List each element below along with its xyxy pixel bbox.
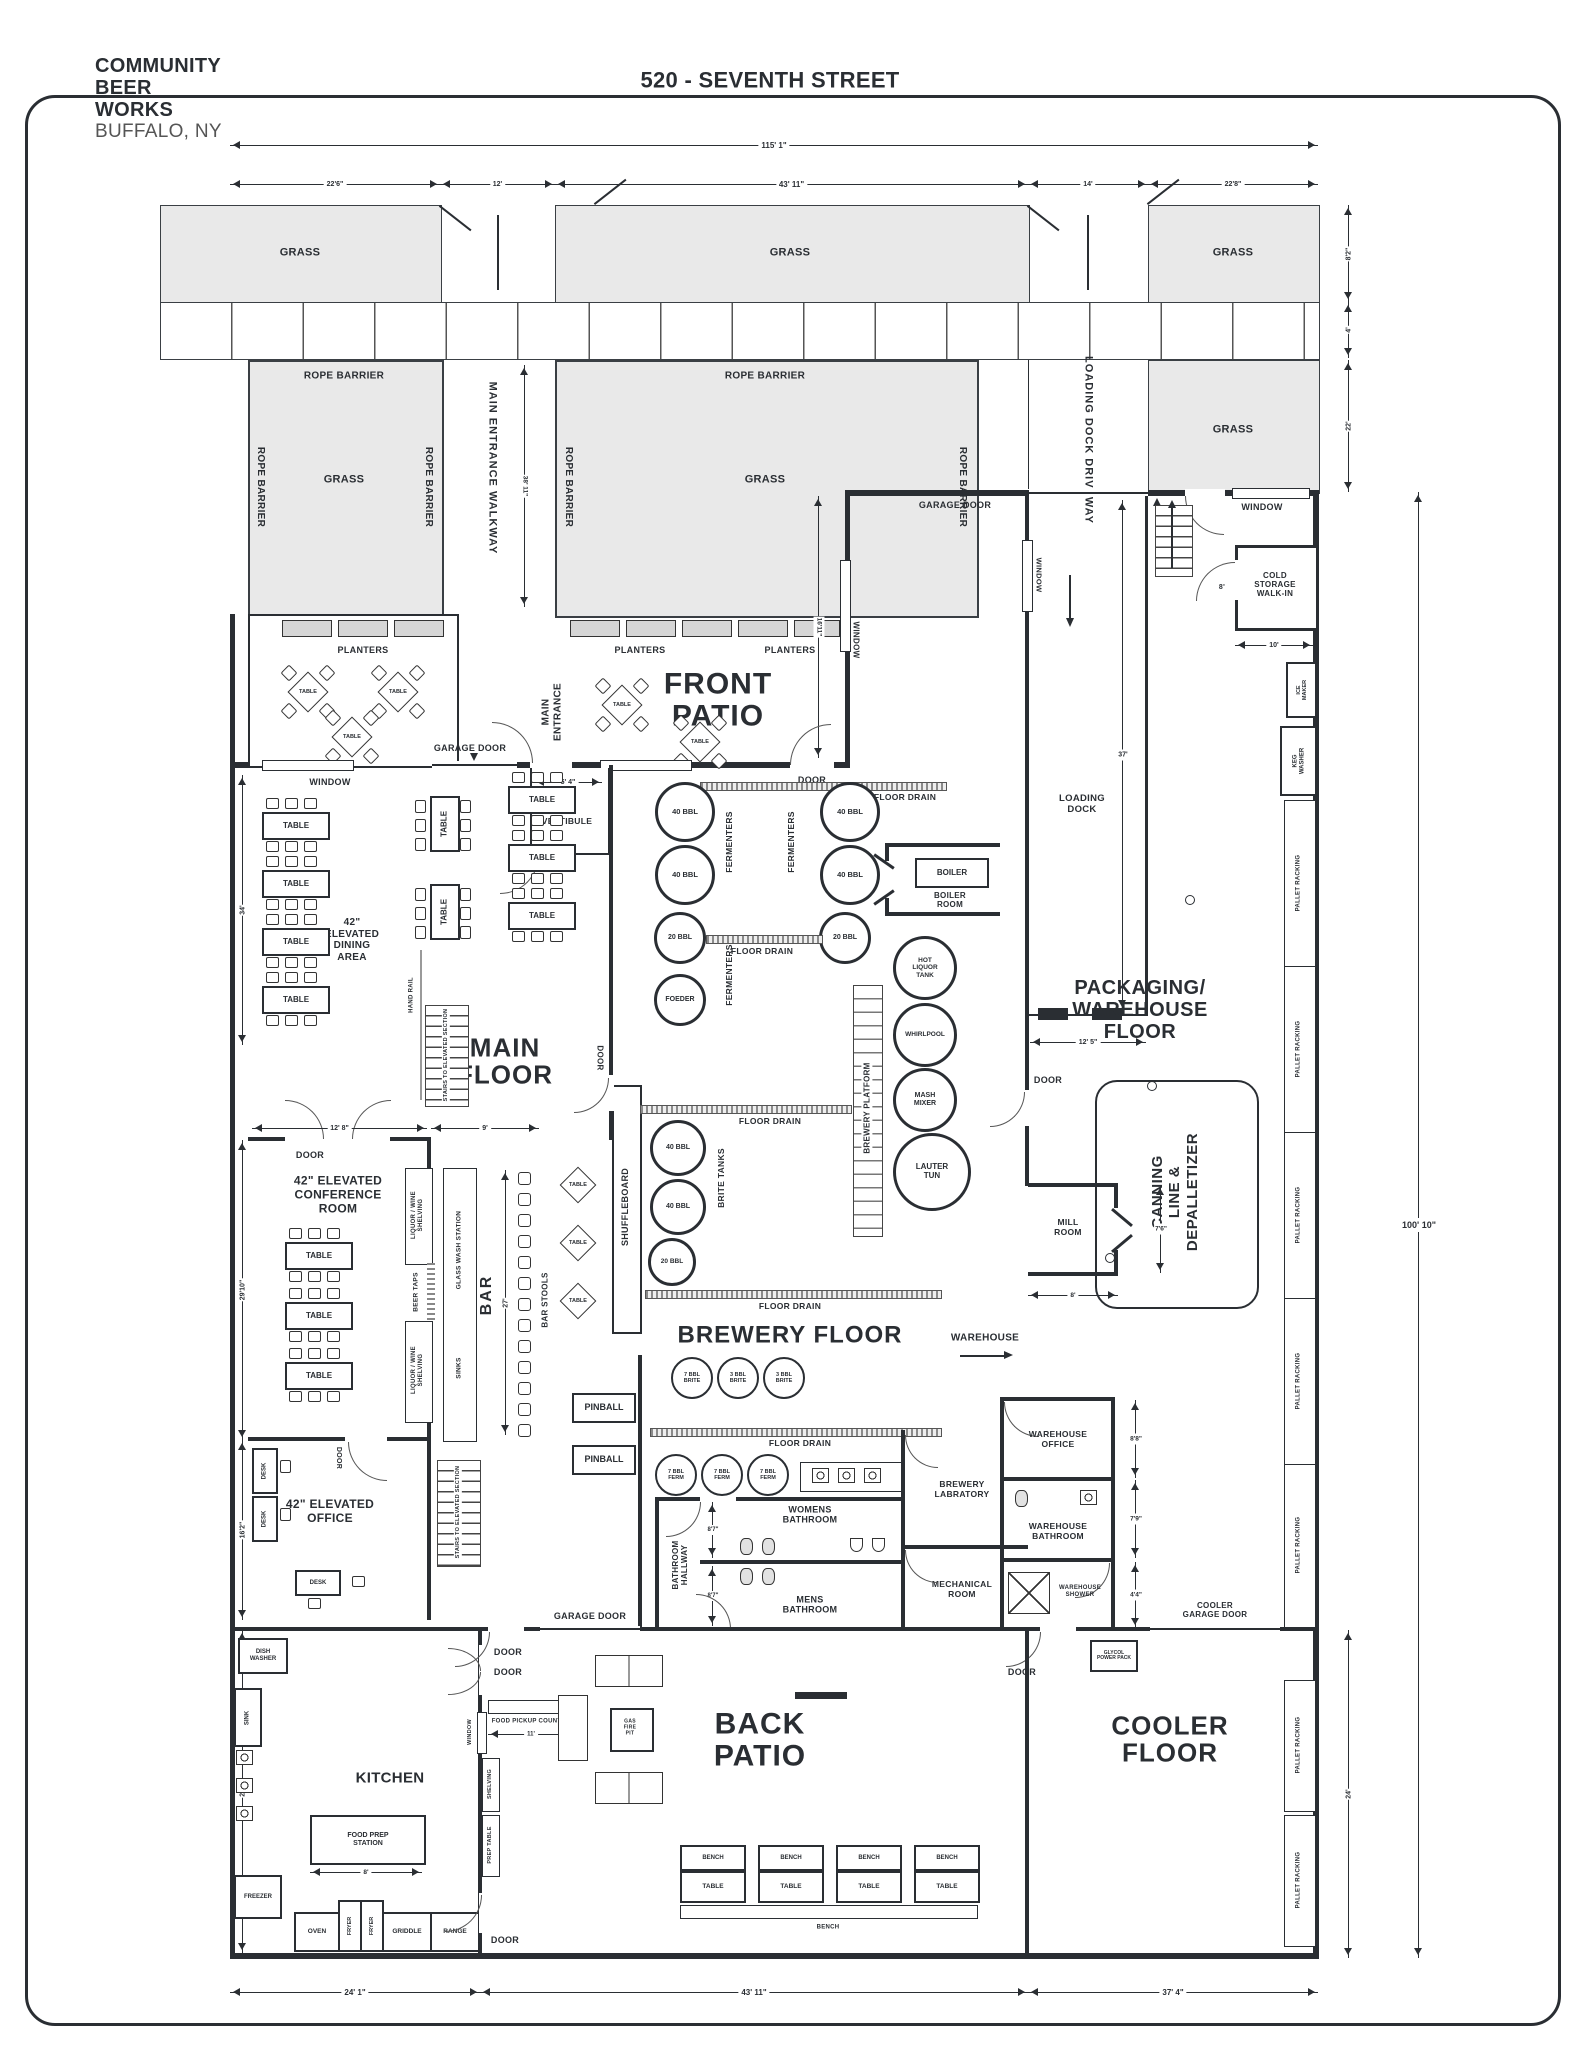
cooler-garage-label: COOLER GARAGE DOOR [1183, 1601, 1248, 1619]
conference-table: TABLE [285, 1242, 353, 1270]
pallet-rack-label: PALLET RACKING [1296, 1187, 1303, 1244]
taproom-garage-line [432, 764, 517, 766]
dim-food-prep: 8' [310, 1872, 422, 1873]
ne-window [1232, 488, 1310, 499]
desk-label: DESK [310, 1580, 327, 1587]
dim-cold-storage-label: 10' [1266, 642, 1281, 649]
chair-row [266, 957, 317, 968]
floor-drain-point [1185, 895, 1195, 905]
dim-bottom-patio-label: 43' 11" [738, 1988, 769, 1997]
dim-12-label: 12' [490, 181, 505, 188]
wall-whoffice-bottom [1000, 1477, 1115, 1481]
back-door-1-label: DOOR [494, 1667, 522, 1677]
dock-window-label: WINDOW [1034, 558, 1043, 593]
ice-maker-label: ICE MAKER [1295, 680, 1307, 700]
hot-liquor-tank: HOT LIQUOR TANK [893, 936, 957, 1000]
fermenter-40bbl: 40 BBL [655, 782, 715, 842]
floor-drain-2-label: FLOOR DRAIN [731, 947, 793, 957]
wall-hallway-left [655, 1497, 659, 1630]
keg-washer-label: KEG WASHER [1292, 748, 1305, 774]
dim-conference: 29'10" [242, 1140, 243, 1440]
bar-label: BAR [478, 1275, 496, 1316]
wall-kitchen-top [230, 1627, 482, 1631]
dim-total-width: 115' 1" [230, 145, 1318, 146]
gas-fire-pit-label: GAS FIRE PIT [624, 1719, 637, 1736]
floor-plan-page: COMMUNITY BEER WORKS BUFFALO, NY 520 - S… [0, 0, 1583, 2048]
dim-sidewalk-label: 4' [1344, 326, 1355, 334]
floor-drain-5 [650, 1428, 942, 1437]
shuffleboard-label: SHUFFLEBOARD [620, 1168, 630, 1246]
bar-stools [518, 1172, 531, 1437]
fermenters-label-1: FERMENTERS [725, 811, 735, 873]
pallet-rack-label: PALLET RACKING [1296, 1717, 1303, 1774]
urinal [872, 1538, 885, 1552]
dim-cooler-height-label: 24' [1344, 1788, 1355, 1799]
dining-table: TABLE [508, 786, 576, 814]
chair-row [289, 1271, 340, 1282]
wall-whoffice-top [1000, 1397, 1115, 1401]
kitchen-window-label: WINDOW [467, 1719, 473, 1745]
dining-table-vertical: TABLE [430, 884, 460, 940]
kitchen-door-bottom-label: DOOR [491, 1935, 519, 1945]
planter [394, 620, 444, 637]
dim-walkway: 38' 11" [524, 365, 525, 607]
planter [682, 620, 732, 637]
foeder: FOEDER [654, 974, 706, 1026]
warehouse-shower-label: WAREHOUSE SHOWER [1059, 1585, 1101, 1599]
wall-mill-r2 [1114, 1250, 1118, 1276]
dim-whbath: 7'9" [1135, 1480, 1136, 1558]
stairs-main-label: STAIRS TO ELEVATED SECTION [442, 1008, 450, 1103]
floor-drain-4-label: FLOOR DRAIN [759, 1302, 821, 1312]
taproom-window-2 [600, 760, 692, 771]
dim-womens-label: 8'7" [707, 1525, 720, 1535]
chair-row [512, 873, 563, 884]
wall-boiler-bottom [885, 912, 1000, 916]
brite-20bbl: 20 BBL [648, 1238, 696, 1286]
bar-stools-label: BAR STOOLS [540, 1272, 549, 1327]
dim-womens: 8'7" [712, 1502, 713, 1558]
toilet [740, 1568, 753, 1585]
shelving-label: SHELVING [487, 1769, 493, 1799]
dim-dining: 34' [242, 775, 243, 1045]
floor-drain-4 [645, 1290, 942, 1299]
dock-stairs-line [1171, 508, 1173, 568]
packaging-title: PACKAGING/ WAREHOUSE FLOOR [1072, 977, 1208, 1043]
fryer-label: FRYER [369, 1917, 375, 1935]
logo-line2: BEER [95, 77, 152, 100]
dim-whoffice-label: 8'8" [1129, 1434, 1143, 1445]
wall-mill-bottom [1028, 1272, 1118, 1276]
chair-col [415, 800, 426, 851]
sofa [595, 1655, 663, 1687]
bathroom-hallway-label: BATHROOM HALLWAY [671, 1541, 689, 1590]
planters-label-3: PLANTERS [765, 645, 816, 655]
cooler-garage-line [1150, 1628, 1280, 1630]
brewery-platform-label: BREWERY PLATFORM [861, 1060, 872, 1155]
dim-whbath-label: 7'9" [1129, 1514, 1143, 1525]
chair-row [289, 1228, 340, 1239]
dock-window [1022, 540, 1033, 612]
glycol-power-pack: GLYCOL POWER PACK [1090, 1640, 1138, 1672]
dim-patio-east-label: 16'11" [814, 617, 825, 638]
fryer-label: FRYER [347, 1917, 353, 1935]
planter [626, 620, 676, 637]
dining-table-label: TABLE [441, 811, 450, 837]
gap-packaging-door [1024, 1090, 1030, 1126]
sink-basin [236, 1750, 253, 1765]
dim-bar: 27' [505, 1170, 506, 1435]
fermenter-20bbl: 20 BBL [819, 912, 871, 964]
warehouse-arrow [1004, 1351, 1013, 1359]
desk: DESK [295, 1570, 341, 1596]
ne-window-label: WINDOW [1241, 502, 1282, 512]
conference-table: TABLE [285, 1362, 353, 1390]
chair-col [415, 888, 426, 939]
desk-chair [308, 1598, 321, 1609]
chair-row [512, 830, 563, 841]
wall-mill-top [1028, 1183, 1118, 1187]
ice-maker: ICE MAKER [1286, 662, 1317, 718]
dock-stairs [1155, 505, 1193, 577]
food-prep-station: FOOD PREP STATION [310, 1815, 426, 1865]
toilet [740, 1538, 753, 1555]
conference-title: 42" ELEVATED CONFERENCE ROOM [294, 1174, 382, 1215]
planters-label-2: PLANTERS [615, 645, 666, 655]
dock-down-arrow-line [1069, 575, 1071, 620]
dim-bottom-cooler-label: 37' 4" [1159, 1988, 1186, 1997]
rope-area-2 [555, 360, 979, 618]
desk: DESK [252, 1448, 278, 1494]
pallet-rack-label: PALLET RACKING [1296, 1852, 1303, 1909]
brite-3bbl: 3 BBL BRITE [717, 1357, 759, 1399]
dim-14-label: 14' [1080, 181, 1095, 188]
ferm-7bbl: 7 BBL FERM [747, 1454, 789, 1496]
conference-door-label: DOOR [296, 1150, 324, 1160]
dim-22-6-label: 22'6" [324, 181, 347, 188]
floor-drain-1 [700, 782, 947, 791]
rope-label-1-right: ROPE BARRIER [422, 447, 434, 527]
chair-row [512, 772, 563, 783]
bench: BENCH [836, 1845, 902, 1871]
freezer: FREEZER [234, 1875, 282, 1919]
wall-office-top [248, 1437, 430, 1441]
bench: BENCH [914, 1845, 980, 1871]
patio-east-window [840, 560, 851, 652]
gap-cooler-door [1040, 1626, 1076, 1632]
wall-games-hallway [638, 1355, 642, 1630]
logo-line3: WORKS [95, 99, 173, 122]
dim-12: 12' [440, 184, 555, 185]
oven: OVEN [294, 1912, 340, 1952]
patio-table: TABLE [595, 678, 649, 732]
dining-title: 42" ELEVATED DINING AREA [325, 917, 379, 963]
packaging-door-label: DOOR [1034, 1075, 1062, 1085]
dining-table-label: TABLE [441, 899, 450, 925]
chair-row [289, 1331, 340, 1342]
grass-label-2: GRASS [770, 247, 811, 260]
patio-table-label: TABLE [343, 734, 361, 740]
dim-mill-w: 8' [1028, 1295, 1118, 1296]
wall-cooler-west [1025, 1627, 1029, 1958]
prep-table-label: PREP TABLE [487, 1826, 493, 1863]
office-title: 42" ELEVATED OFFICE [286, 1498, 374, 1526]
dock-bumper [1038, 1008, 1068, 1020]
dim-pickup-label: 11' [524, 1732, 538, 1738]
chair-col [460, 800, 471, 851]
sofa-chair [558, 1695, 588, 1761]
bar-counter [443, 1168, 477, 1442]
dining-table: TABLE [262, 870, 330, 898]
chair-row [266, 972, 317, 983]
pinball-2: PINBALL [572, 1445, 636, 1475]
gap-back-door-1 [488, 1626, 524, 1632]
bar-table: TABLE [556, 1163, 600, 1207]
chair-row [266, 841, 317, 852]
fermenter-40bbl: 40 BBL [820, 845, 880, 905]
logo-city: BUFFALO, NY [95, 121, 222, 143]
cooler-floor-title: COOLER FLOOR [1111, 1713, 1228, 1768]
wall-boiler-l1 [885, 843, 889, 861]
fermenter-40bbl: 40 BBL [655, 845, 715, 905]
bar-table-label: TABLE [569, 1240, 587, 1246]
desk-label: DESK [262, 1511, 269, 1528]
patio-table-label: TABLE [691, 739, 709, 745]
patio-wall-mark [795, 1692, 847, 1699]
chair-row [266, 899, 317, 910]
patio-table: TABLE [325, 710, 379, 764]
warehouse-label: WAREHOUSE [951, 1332, 1019, 1344]
dim-mill-h-label: 7'6" [1154, 1224, 1168, 1235]
floor-drain-2 [706, 935, 823, 944]
dim-43-11-label: 43' 11" [776, 180, 807, 189]
bar-table: TABLE [556, 1221, 600, 1265]
chair-row [266, 856, 317, 867]
bar-table: TABLE [556, 1279, 600, 1323]
bar-table-label: TABLE [569, 1182, 587, 1188]
sink-basin [838, 1468, 855, 1483]
toilet [762, 1538, 775, 1555]
warehouse-bathroom-label: WAREHOUSE BATHROOM [1029, 1522, 1087, 1542]
warehouse-office-label: WAREHOUSE OFFICE [1029, 1430, 1087, 1450]
dim-total-width-label: 115' 1" [758, 141, 789, 150]
chair-row [289, 1348, 340, 1359]
dim-rope-height: 22' [1348, 360, 1349, 492]
wall-boiler-l2 [885, 898, 889, 916]
ne-garage-line [1028, 492, 1148, 494]
pallet-rack-label: PALLET RACKING [1296, 1021, 1303, 1078]
dim-22-8-label: 22'8" [1222, 181, 1245, 188]
womens-bathroom-label: WOMENS BATHROOM [783, 1505, 838, 1526]
sink-basin [1080, 1490, 1097, 1505]
dim-food-prep-label: 8' [360, 1869, 371, 1876]
bench-table: TABLE [680, 1871, 746, 1903]
wall-whoffice-east [1111, 1397, 1115, 1630]
wall-packaging-west-2 [1025, 1126, 1029, 1186]
street-title: 520 - SEVENTH STREET [640, 67, 899, 92]
desk-chair [280, 1508, 291, 1521]
dim-14: 14' [1028, 184, 1148, 185]
grass-label-3: GRASS [1213, 247, 1254, 260]
mill-room-label: MILL ROOM [1054, 1218, 1082, 1238]
ferm-7bbl: 7 BBL FERM [701, 1454, 743, 1496]
chair-row [266, 914, 317, 925]
brite-40bbl: 40 BBL [650, 1120, 706, 1176]
sink-basin [236, 1806, 253, 1821]
hand-rail [420, 950, 422, 1100]
wall-lab-bottom [905, 1545, 1028, 1549]
sink-basin [864, 1468, 881, 1483]
desk-label: DESK [262, 1463, 269, 1480]
fryer: FRYER [338, 1900, 362, 1952]
fermenters-label-3: FERMENTERS [787, 811, 797, 873]
dim-grass-height-label: 8'2" [1344, 246, 1355, 261]
toilet [1015, 1490, 1028, 1507]
dim-patio-east: 16'11" [818, 496, 819, 758]
kitchen-door-top-label: DOOR [494, 1647, 522, 1657]
dish-washer: DISH WASHER [238, 1638, 288, 1674]
dim-conference-door-label: 12' 8" [327, 1125, 352, 1132]
walkway-label: MAIN ENTRANCE WALKWAY [486, 382, 499, 555]
cold-storage-label: COLD STORAGE WALK-IN [1254, 571, 1296, 599]
glass-wash-label: GLASS WASH STATION [455, 1211, 462, 1289]
brite-7bbl: 7 BBL BRITE [671, 1357, 713, 1399]
ne-garage-label: GARAGE DOOR [919, 500, 991, 510]
back-patio-title: BACK PATIO [714, 1709, 806, 1772]
dim-bar-label: 27' [501, 1297, 512, 1308]
dim-whshower: 4'4" [1135, 1562, 1136, 1628]
mens-bathroom-label: MENS BATHROOM [783, 1595, 838, 1616]
rope-label-2-right: ROPE BARRIER [956, 447, 968, 527]
brewery-floor-title: BREWERY FLOOR [677, 1322, 902, 1347]
brewery-lab-label: BREWERY LABRATORY [935, 1480, 990, 1500]
planter [338, 620, 388, 637]
wall-womens-top [655, 1497, 905, 1501]
dining-table: TABLE [508, 844, 576, 872]
brite-40bbl: 40 BBL [650, 1179, 706, 1235]
long-bench [680, 1905, 978, 1919]
wall-office-right [427, 1437, 431, 1620]
dim-rope-height-label: 22' [1344, 420, 1355, 431]
patio-east-window-label: WINDOW [851, 622, 860, 659]
pinball-1: PINBALL [572, 1393, 636, 1423]
wall-whbath-bottom [1000, 1558, 1115, 1562]
rope-area-2-grass: GRASS [745, 474, 786, 487]
loading-dock-label: LOADING DOCK [1059, 794, 1105, 816]
keg-washer: KEG WASHER [1280, 726, 1317, 796]
bench: BENCH [758, 1845, 824, 1871]
wall-bath-divider [700, 1560, 905, 1564]
desk: DESK [252, 1496, 278, 1542]
rope-label-2-top: ROPE BARRIER [725, 370, 805, 382]
sidewalk [160, 302, 1320, 360]
sink-basin [236, 1778, 253, 1793]
dim-43-11: 43' 11" [555, 184, 1028, 185]
desk-chair [280, 1460, 291, 1473]
brite-3bbl: 3 BBL BRITE [763, 1357, 805, 1399]
dim-bar-gap-label: 9' [479, 1125, 491, 1132]
driveway-center-line [1087, 215, 1089, 290]
hand-rail-label: HAND RAIL [409, 977, 416, 1013]
dim-bar-gap: 9' [431, 1128, 539, 1129]
planter [570, 620, 620, 637]
sink-basin [812, 1468, 829, 1483]
patio-table: TABLE [371, 665, 425, 719]
taproom-window-label: WINDOW [309, 777, 350, 787]
dim-office-label: 16'2" [238, 1521, 249, 1540]
wall-bath-right [901, 1430, 905, 1630]
kitchen-sink-label: SINK [245, 1710, 252, 1724]
dock-stairs-arrow [1168, 500, 1176, 508]
brite-tanks-label: BRITE TANKS [717, 1148, 727, 1208]
dim-22-6: 22'6" [230, 184, 440, 185]
floor-drain-3 [640, 1105, 852, 1114]
dim-dining-label: 34' [238, 904, 249, 915]
beer-taps-label: BEER TAPS [412, 1272, 419, 1311]
chair-col [460, 888, 471, 939]
lauter-tun: LAUTER TUN [893, 1133, 971, 1211]
whirlpool: WHIRLPOOL [893, 1003, 957, 1067]
grass-right-label: GRASS [1213, 424, 1254, 437]
main-entrance-label: MAIN ENTRANCE [541, 683, 564, 741]
floor-drain-point [1147, 1081, 1157, 1091]
mash-mixer: MASH MIXER [893, 1068, 957, 1132]
dim-dock-label: 37' [1117, 750, 1128, 761]
chair-row [289, 1391, 340, 1402]
dim-cooler-height: 24' [1348, 1630, 1349, 1958]
liquor-shelf-2-label: LIQUOR / WINE SHELVING [411, 1346, 425, 1394]
dining-table: TABLE [262, 986, 330, 1014]
dim-walkway-label: 38' 11" [520, 475, 531, 498]
walkway-center-line [497, 215, 499, 290]
chair-row [512, 815, 563, 826]
grass-label-1: GRASS [280, 247, 321, 260]
dining-table: TABLE [262, 812, 330, 840]
wall-mill-r1 [1114, 1183, 1118, 1208]
dim-dock: 37' [1122, 500, 1123, 1010]
logo-line1: COMMUNITY [95, 55, 221, 78]
dining-table: TABLE [508, 902, 576, 930]
dining-table-vertical: TABLE [430, 796, 460, 852]
wall-dock-east [1145, 496, 1148, 1016]
warehouse-arrow-line [960, 1355, 1004, 1357]
kitchen-sink: SINK [234, 1688, 262, 1747]
planter [738, 620, 788, 637]
patio-table-label: TABLE [613, 702, 631, 708]
dim-bottom-kitchen-label: 24' 1" [341, 1988, 368, 1997]
chair-row [512, 931, 563, 942]
cold-storage-door-dim: 8' [1219, 584, 1225, 592]
dim-whoffice: 8'8" [1135, 1400, 1136, 1478]
fermenter-40bbl: 40 BBL [820, 782, 880, 842]
dim-building-height: 100' 10" [1418, 492, 1419, 1958]
dim-office: 16'2" [242, 1440, 243, 1620]
dim-grass-height: 8'2" [1348, 205, 1349, 302]
bench-table: TABLE [914, 1871, 980, 1903]
back-garage-label: GARAGE DOOR [554, 1611, 626, 1621]
main-floor-title: MAIN FLOOR [457, 1035, 553, 1090]
long-bench-label: BENCH [817, 1925, 840, 1932]
stairs-office-label: STAIRS TO ELEVATED SECTION [454, 1465, 462, 1560]
dim-bottom-patio: 43' 11" [480, 1992, 1028, 1993]
chair-row [266, 1015, 317, 1026]
cooler-door-label: DOOR [1008, 1667, 1036, 1677]
dim-whshower-label: 4'4" [1129, 1590, 1143, 1601]
sinks-label: SINKS [455, 1357, 462, 1378]
rope-label-1-left: ROPE BARRIER [254, 447, 266, 527]
kitchen-title: KITCHEN [356, 1769, 425, 1786]
wall-south [230, 1953, 1319, 1959]
